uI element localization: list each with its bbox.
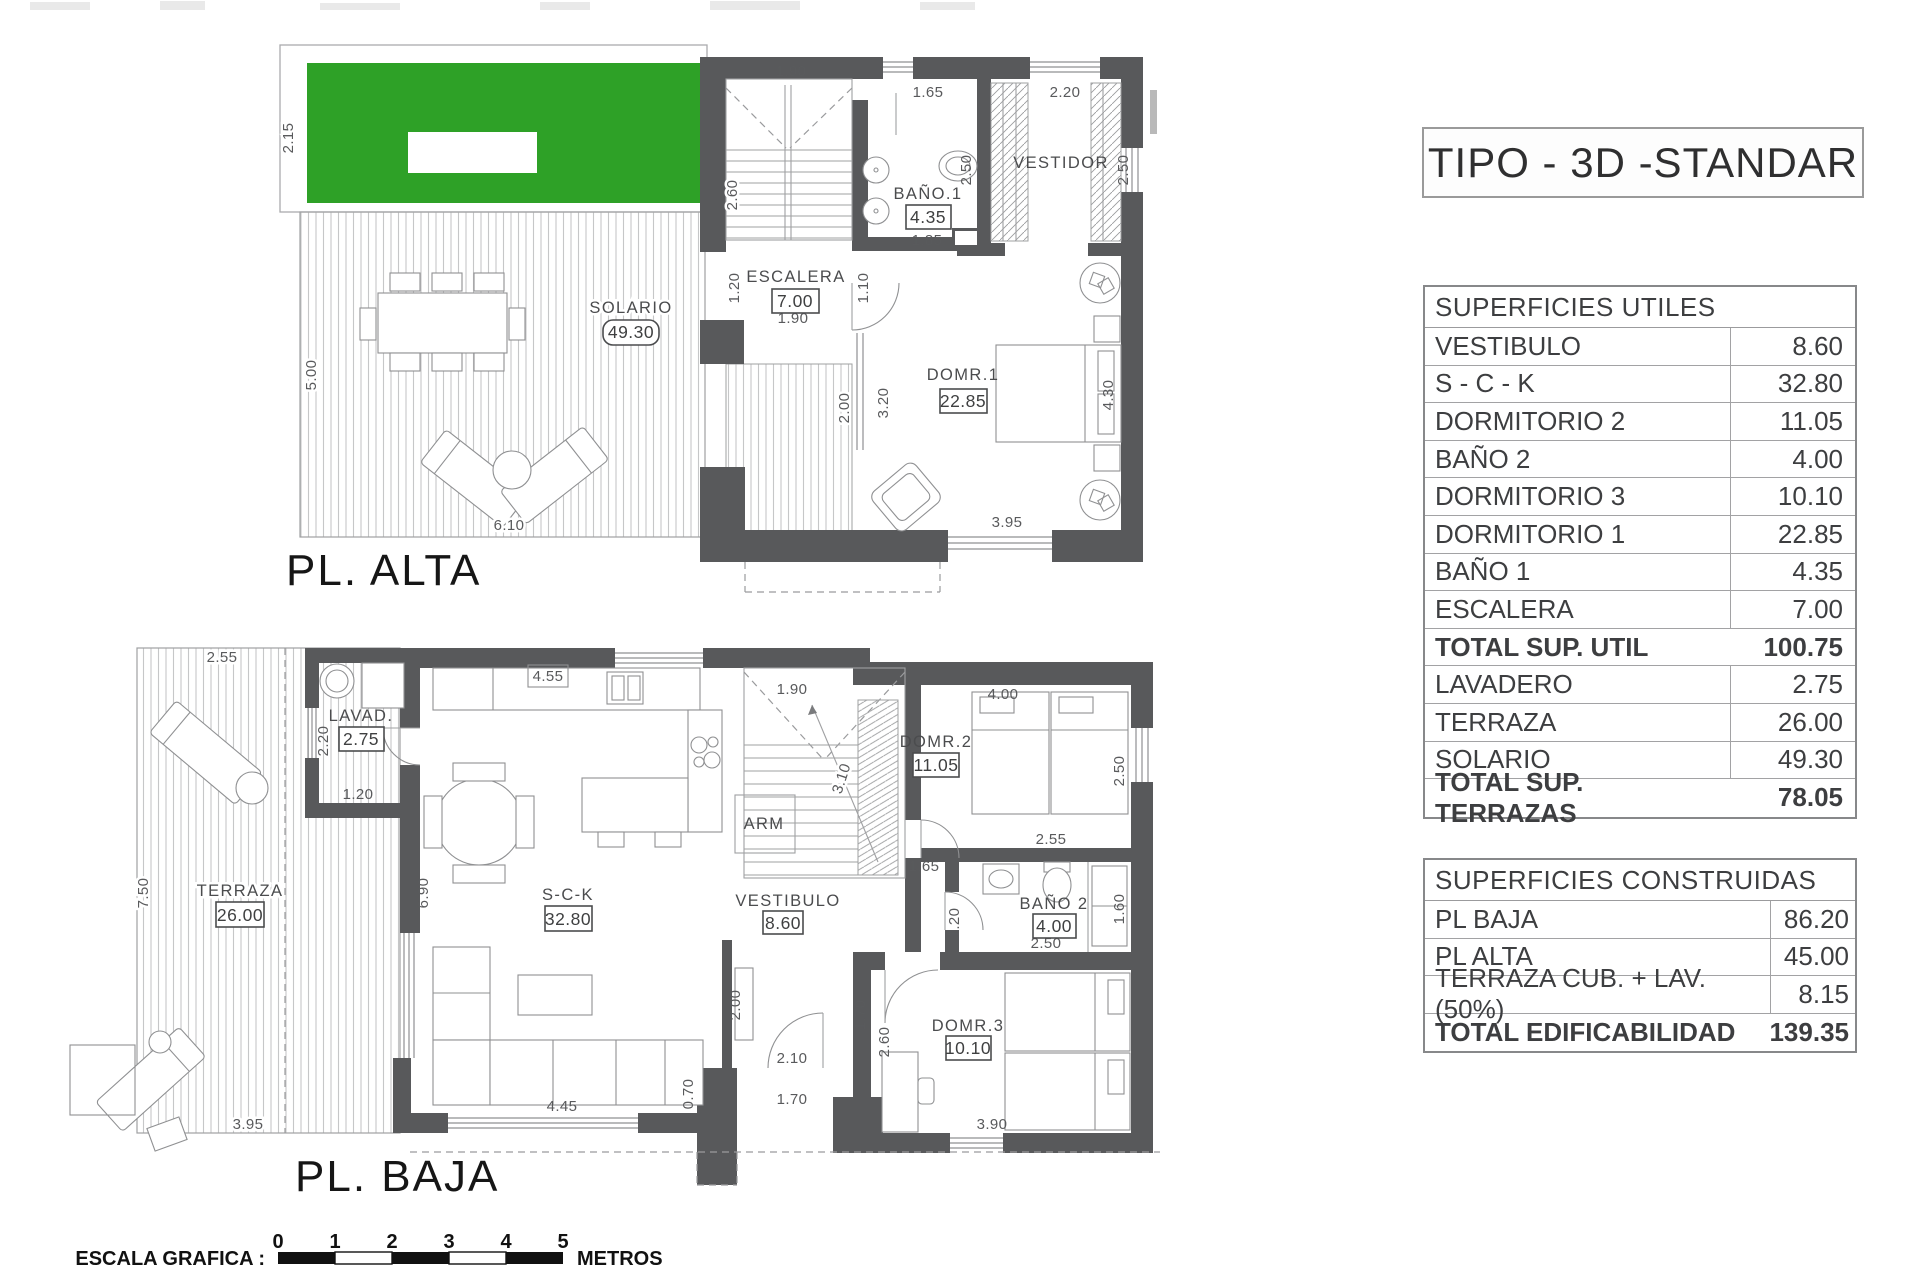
area-domr1: 22.85 [940, 391, 986, 411]
dim: 6.10 [494, 517, 525, 534]
row-label: TOTAL SUP. TERRAZAS [1425, 779, 1730, 817]
scale-segment [278, 1252, 335, 1264]
room-label-sck: S-C-K [542, 886, 594, 904]
room-label-domr1: DOMR.1 [927, 366, 1000, 384]
row-label: TOTAL SUP. UTIL [1425, 629, 1730, 666]
dim: 7.50 [135, 878, 152, 909]
table-row: S - C - K32.80 [1425, 366, 1855, 404]
round-table [424, 763, 534, 883]
scale-tick: 1 [329, 1231, 340, 1253]
area-lavadero: 2.75 [343, 729, 379, 749]
row-label: TERRAZA CUB. + LAV. (50%) [1425, 976, 1770, 1013]
row-label: PL BAJA [1425, 901, 1770, 938]
scale-tick: 4 [500, 1231, 512, 1253]
dim: 2.50 [1111, 756, 1128, 787]
dim: 1.20 [343, 786, 374, 803]
row-label: BAÑO 2 [1425, 441, 1730, 478]
row-label: ESCALERA [1425, 591, 1730, 628]
scale-tick: 3 [443, 1231, 454, 1253]
dim: 3.10 [829, 761, 855, 796]
area-bano1: 4.35 [910, 207, 946, 227]
row-value: 100.75 [1730, 629, 1855, 666]
dim: 2.20 [315, 726, 332, 757]
row-value: 139.35 [1770, 1014, 1855, 1052]
row-label: TERRAZA [1425, 704, 1730, 741]
sheet-title: TIPO - 3D -STANDAR [1422, 127, 1864, 198]
table-row: DORMITORIO 211.05 [1425, 403, 1855, 441]
row-label: BAÑO 1 [1425, 554, 1730, 591]
table-row-total: TOTAL EDIFICABILIDAD139.35 [1425, 1014, 1855, 1052]
dim: 2.50 [958, 155, 975, 186]
dim: 3.90 [977, 1116, 1008, 1133]
scale-segment [506, 1252, 563, 1264]
dim: 4.55 [533, 668, 564, 685]
dim: 2.00 [727, 990, 744, 1021]
scale-bar-label: ESCALA GRAFICA : [75, 1248, 265, 1270]
dim: 2.60 [724, 180, 741, 211]
room-label-escalera: ESCALERA [746, 268, 845, 286]
area-escalera: 7.00 [777, 291, 813, 311]
area-sck: 32.80 [545, 909, 591, 929]
dim: 3.95 [233, 1116, 264, 1133]
table-row: BAÑO 14.35 [1425, 554, 1855, 592]
room-label-solario: SOLARIO [589, 299, 672, 317]
table-superficies-construidas: SUPERFICIES CONSTRUIDAS PL BAJA86.20 PL … [1423, 858, 1857, 1053]
plan-baja: 2.55 2.20 1.20 7.50 4.55 1.90 6.90 3.10 … [70, 648, 1160, 1201]
armchair [868, 460, 943, 534]
row-value: 22.85 [1730, 516, 1855, 553]
table-row: LAVADERO2.75 [1425, 666, 1855, 704]
row-value: 78.05 [1730, 779, 1855, 817]
scale-tick: 0 [272, 1231, 283, 1253]
room-label-bano1: BAÑO.1 [894, 183, 963, 203]
room-label-domr2: DOMR.2 [900, 733, 973, 751]
area-terraza: 26.00 [217, 905, 263, 925]
dim: 1.85 [912, 232, 943, 249]
dim: 2.20 [1050, 84, 1081, 101]
row-value: 86.20 [1770, 901, 1855, 938]
drawing-sheet: 2.15 5.00 6.10 1.90 2.60 1.20 1.90 1.10 … [0, 0, 1920, 1280]
plant [1080, 263, 1120, 303]
row-value: 26.00 [1730, 704, 1855, 741]
dim: 1.90 [776, 63, 807, 80]
table-header: SUPERFICIES UTILES [1425, 287, 1855, 328]
row-label: LAVADERO [1425, 666, 1730, 703]
row-value: 8.60 [1730, 328, 1855, 365]
area-domr3: 10.10 [945, 1038, 991, 1058]
table-row: DORMITORIO 122.85 [1425, 516, 1855, 554]
table-row: TERRAZA CUB. + LAV. (50%)8.15 [1425, 976, 1855, 1014]
dim: 0.70 [680, 1079, 697, 1110]
dim: 3.20 [875, 388, 892, 419]
row-value: 49.30 [1730, 742, 1855, 779]
dim: 2.00 [836, 393, 853, 424]
scale-tick: 5 [557, 1231, 568, 1253]
row-value: 8.15 [1770, 976, 1855, 1013]
row-label: VESTIBULO [1425, 328, 1730, 365]
projection-dashed [745, 562, 940, 592]
solario-deck [300, 212, 852, 537]
green-roof [280, 45, 707, 212]
area-domr2: 11.05 [914, 755, 959, 775]
table-row-total: TOTAL SUP. TERRAZAS78.05 [1425, 779, 1855, 817]
table-row: PL BAJA86.20 [1425, 901, 1855, 939]
room-label-bano2: BAÑO 2 [1020, 893, 1089, 913]
plant [1080, 480, 1120, 520]
area-bano2: 4.00 [1036, 916, 1072, 936]
scale-bar: ESCALA GRAFICA : 0 1 2 3 4 5 METROS [75, 1231, 662, 1270]
scale-segment [392, 1252, 449, 1264]
dim: 1.10 [855, 273, 872, 304]
area-vestibulo: 8.60 [765, 913, 801, 933]
plan-alta: 2.15 5.00 6.10 1.90 2.60 1.20 1.90 1.10 … [280, 45, 1143, 595]
dim: 1.90 [777, 681, 808, 698]
row-label: DORMITORIO 1 [1425, 516, 1730, 553]
room-label-vestidor: VESTIDOR [1013, 154, 1109, 172]
room-label-lavadero: LAVAD. [329, 707, 394, 725]
dim: 2.55 [207, 649, 238, 666]
dim: 2.55 [1036, 831, 1067, 848]
beds-domr2 [972, 692, 1128, 814]
overhang-dashed [410, 1152, 1160, 1185]
row-label: DORMITORIO 2 [1425, 403, 1730, 440]
row-label: TOTAL EDIFICABILIDAD [1425, 1014, 1770, 1052]
plan-title-alta: PL. ALTA [286, 546, 481, 595]
row-label: S - C - K [1425, 366, 1730, 403]
row-value: 10.10 [1730, 478, 1855, 515]
dim: 6.90 [415, 878, 432, 909]
row-value: 4.35 [1730, 554, 1855, 591]
room-label-domr3: DOMR.3 [932, 1017, 1005, 1035]
dim: 1.65 [913, 84, 944, 101]
sheet-title-text: TIPO - 3D -STANDAR [1428, 139, 1858, 187]
row-label: DORMITORIO 3 [1425, 478, 1730, 515]
dim: 4.45 [547, 1098, 578, 1115]
beds-domr3 [882, 973, 1130, 1132]
dim: 1.20 [726, 273, 743, 304]
table-row: BAÑO 24.00 [1425, 441, 1855, 479]
table-row: DORMITORIO 310.10 [1425, 478, 1855, 516]
scale-segment [335, 1252, 392, 1264]
table-row: ESCALERA7.00 [1425, 591, 1855, 629]
row-value: 4.00 [1730, 441, 1855, 478]
dim: 2.60 [876, 1027, 893, 1058]
dim: 4.30 [1100, 380, 1117, 411]
dim: 1.65 [909, 858, 940, 875]
scale-units: METROS [577, 1248, 663, 1270]
dim: 2.50 [1115, 155, 1132, 186]
table-row: VESTIBULO8.60 [1425, 328, 1855, 366]
row-value: 32.80 [1730, 366, 1855, 403]
scale-tick: 2 [386, 1231, 397, 1253]
dim: 4.00 [988, 686, 1019, 703]
row-value: 2.75 [1730, 666, 1855, 703]
row-value: 11.05 [1730, 403, 1855, 440]
table-header: SUPERFICIES CONSTRUIDAS [1425, 860, 1855, 901]
table-superficies-utiles: SUPERFICIES UTILES VESTIBULO8.60 S - C -… [1423, 285, 1857, 819]
dim: 1.20 [946, 908, 963, 939]
row-value: 45.00 [1770, 939, 1855, 976]
dim: 1.70 [852, 1000, 869, 1031]
room-label-vestibulo: VESTIBULO [735, 892, 840, 910]
table-row: TERRAZA26.00 [1425, 704, 1855, 742]
area-solario: 49.30 [608, 322, 654, 342]
room-label-terraza: TERRAZA [197, 882, 284, 900]
staircase-baja [735, 668, 905, 878]
dim: 2.15 [280, 123, 297, 154]
row-value: 7.00 [1730, 591, 1855, 628]
room-label-arm: ARM [744, 815, 785, 833]
scale-segment [449, 1252, 506, 1264]
dim: 5.00 [303, 360, 320, 391]
dim: 1.60 [1111, 894, 1128, 925]
dim: 3.95 [992, 514, 1023, 531]
plan-title-baja: PL. BAJA [295, 1152, 499, 1201]
table-row-total: TOTAL SUP. UTIL100.75 [1425, 629, 1855, 667]
dim: 2.10 [777, 1050, 808, 1067]
dim: 1.70 [777, 1091, 808, 1108]
